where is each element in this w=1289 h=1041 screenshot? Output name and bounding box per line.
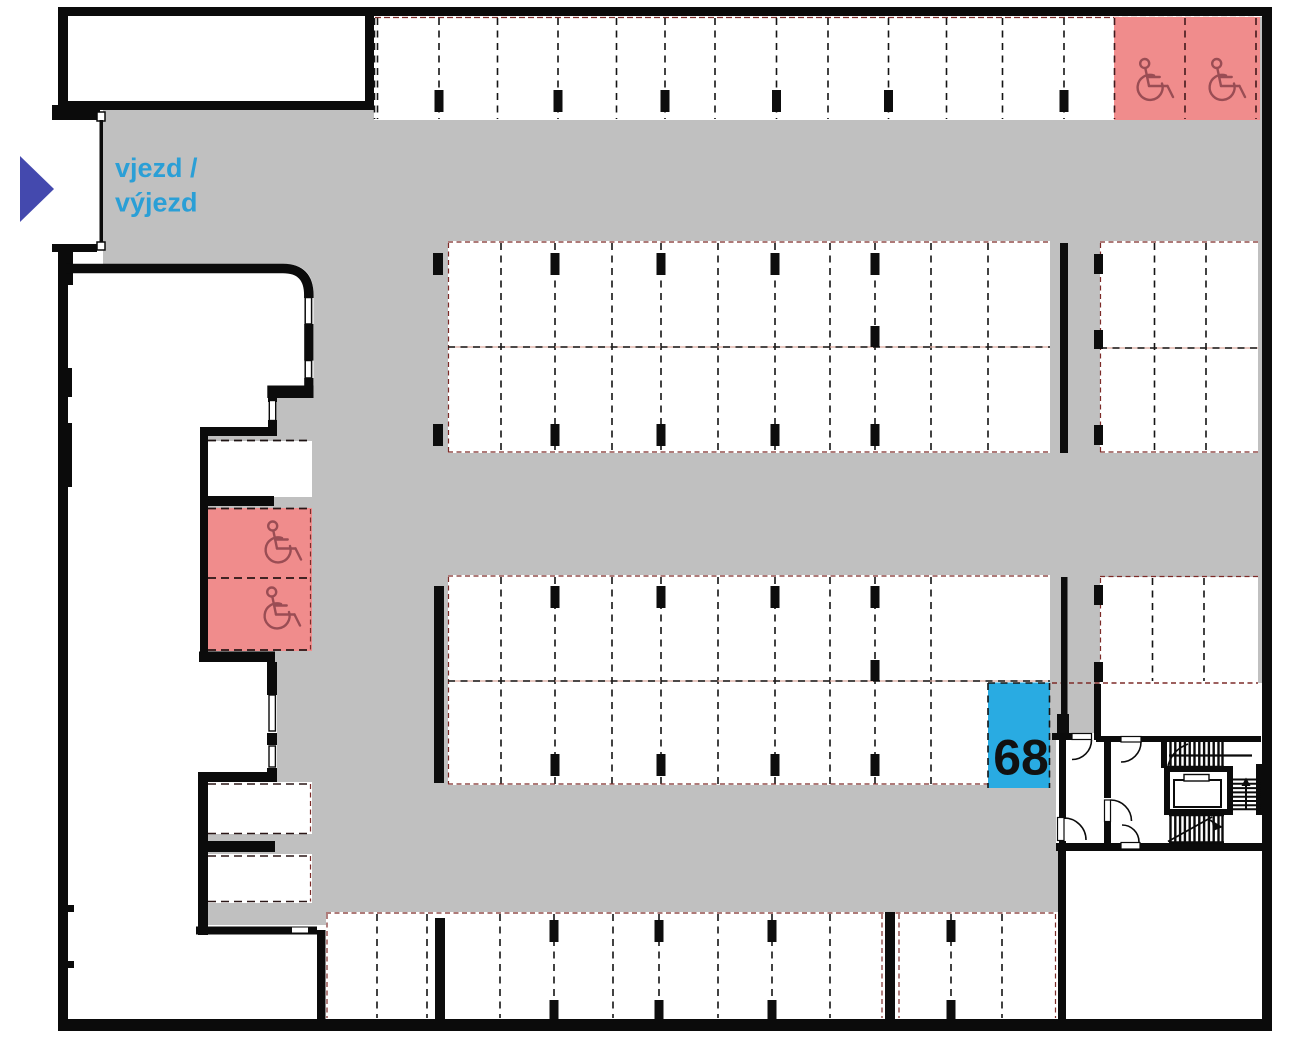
svg-text:68: 68	[993, 730, 1049, 786]
svg-text:vjezd /: vjezd /	[115, 153, 198, 183]
svg-text:výjezd: výjezd	[115, 188, 198, 218]
